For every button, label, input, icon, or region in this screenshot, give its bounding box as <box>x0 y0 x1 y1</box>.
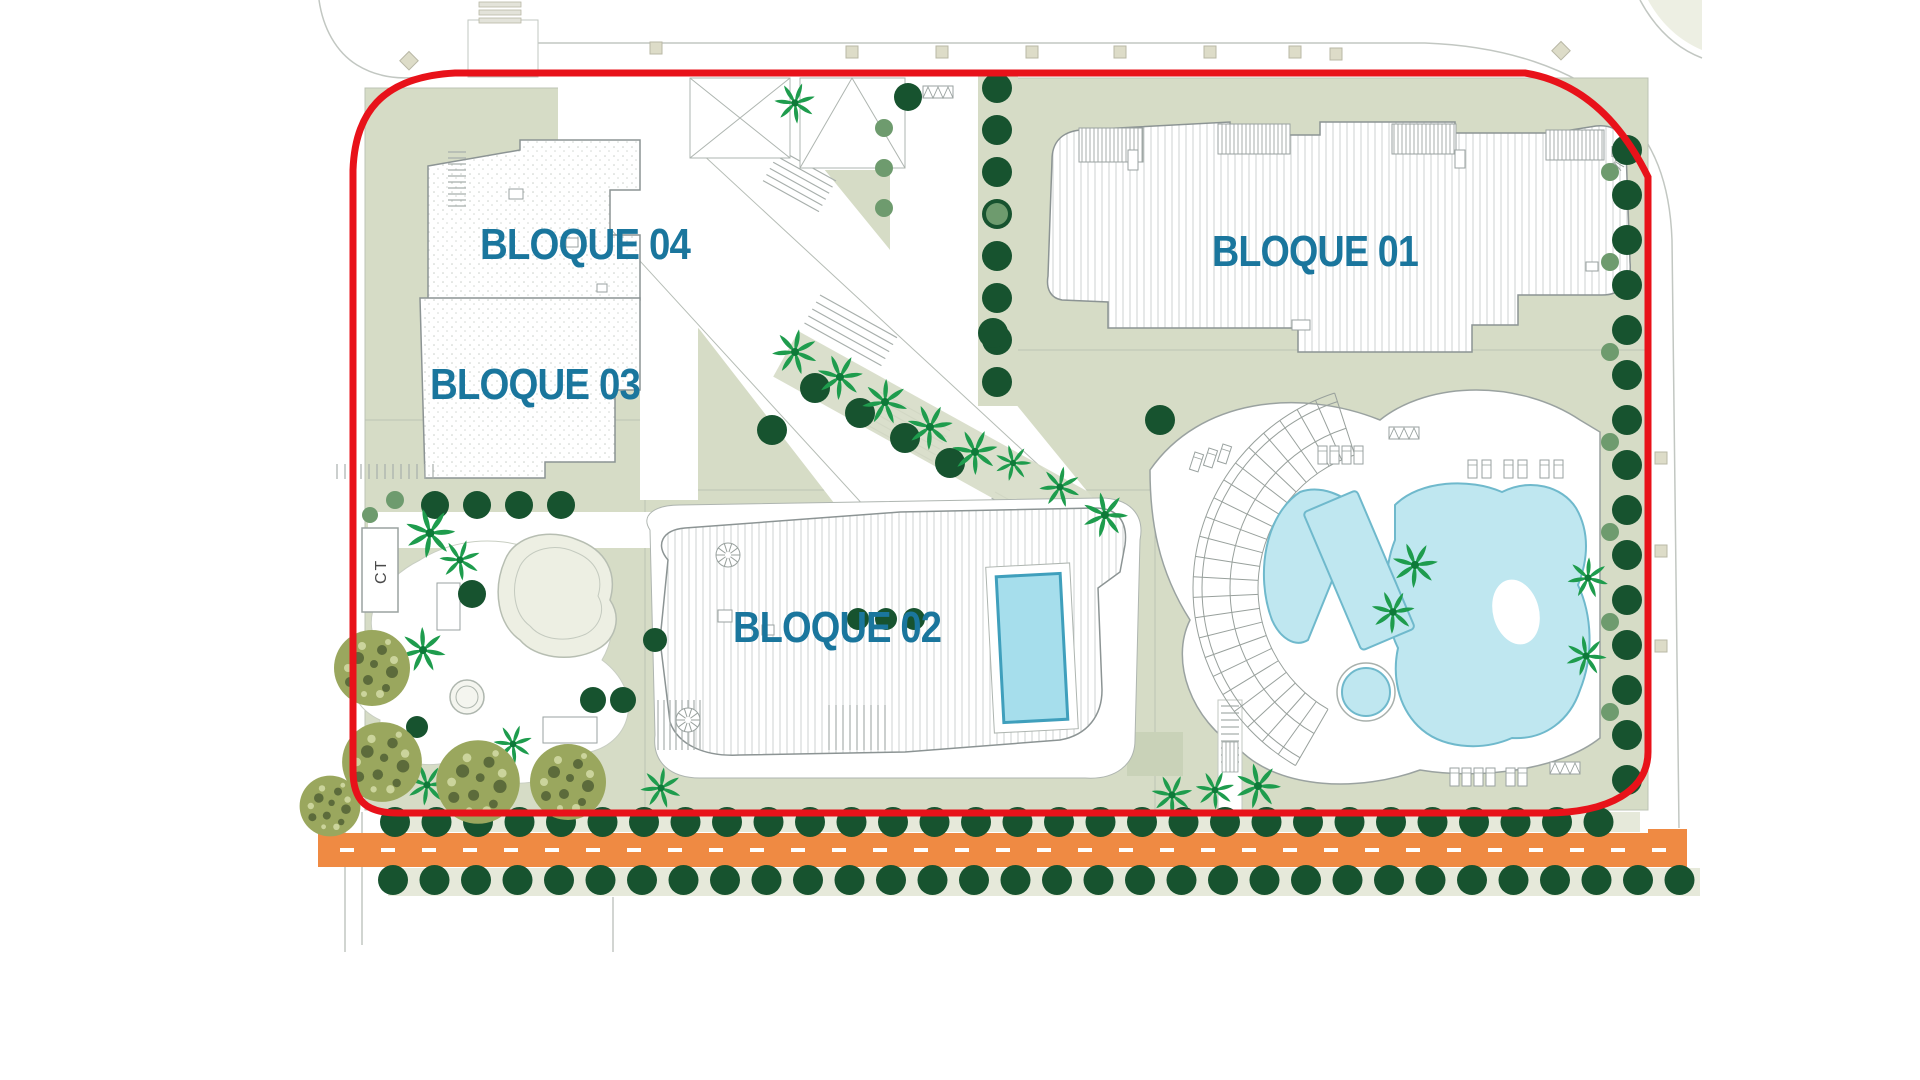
tree <box>580 687 606 713</box>
tree <box>757 415 787 445</box>
tree <box>982 367 1012 397</box>
tree <box>1612 585 1642 615</box>
label-bloque01: BLOQUE 01 <box>1212 227 1418 276</box>
pedestrian-crossing-island <box>468 20 538 77</box>
tree <box>1612 540 1642 570</box>
tree <box>1601 253 1619 271</box>
tree <box>875 199 893 217</box>
masterplan-svg: BLOQUE 04 BLOQUE 03 BLOQUE 02 BLOQUE 01 … <box>0 0 1920 1080</box>
tree <box>1145 405 1175 435</box>
tree <box>1612 720 1642 750</box>
tree <box>835 865 865 895</box>
tree <box>1612 360 1642 390</box>
tree <box>547 491 575 519</box>
tree <box>1612 405 1642 435</box>
roundabout-outer <box>450 680 484 714</box>
tree <box>793 865 823 895</box>
tree <box>918 865 948 895</box>
tree <box>982 241 1012 271</box>
site-plan-canvas: BLOQUE 04 BLOQUE 03 BLOQUE 02 BLOQUE 01 … <box>0 0 1920 1080</box>
tree <box>1374 865 1404 895</box>
tree <box>1601 613 1619 631</box>
label-bloque02: BLOQUE 02 <box>733 603 941 652</box>
tree <box>378 865 408 895</box>
tree <box>1457 865 1487 895</box>
tree <box>463 491 491 519</box>
tree <box>1001 865 1031 895</box>
tree <box>1612 630 1642 660</box>
road-edge-top-left <box>319 0 452 78</box>
tree <box>982 283 1012 313</box>
label-bloque04: BLOQUE 04 <box>480 220 691 269</box>
tree <box>1333 865 1363 895</box>
tree <box>1416 865 1446 895</box>
tree <box>643 628 667 652</box>
west-walk <box>640 96 698 500</box>
tree <box>503 865 533 895</box>
tree <box>1582 865 1612 895</box>
tree <box>875 159 893 177</box>
tree <box>710 865 740 895</box>
tree <box>1612 495 1642 525</box>
label-bloque03: BLOQUE 03 <box>430 360 640 409</box>
tree <box>1125 865 1155 895</box>
label-ct: CT <box>373 559 390 584</box>
tree <box>1540 865 1570 895</box>
tree <box>1612 315 1642 345</box>
bloque02-pool-group <box>986 563 1079 733</box>
tree <box>1612 675 1642 705</box>
tree <box>1601 703 1619 721</box>
tree <box>1601 343 1619 361</box>
tree <box>458 580 486 608</box>
tree <box>420 865 450 895</box>
tree <box>461 865 491 895</box>
tree <box>505 491 533 519</box>
tree <box>875 119 893 137</box>
tree <box>1250 865 1280 895</box>
zebra-crossing <box>479 2 521 23</box>
tree <box>1623 865 1653 895</box>
pergola-trellis <box>1222 742 1238 772</box>
tree <box>1665 865 1695 895</box>
tree <box>544 865 574 895</box>
tree <box>1612 450 1642 480</box>
tree <box>894 83 922 111</box>
tree <box>982 73 1012 103</box>
tree <box>982 115 1012 145</box>
tree <box>959 865 989 895</box>
tree <box>1601 163 1619 181</box>
tree <box>876 865 906 895</box>
spa-pool <box>1342 668 1390 716</box>
lagoon-pool-large <box>1386 483 1589 746</box>
tree <box>1612 270 1642 300</box>
tree <box>610 687 636 713</box>
tree <box>1291 865 1321 895</box>
tree <box>669 865 699 895</box>
tree <box>362 507 378 523</box>
tree <box>1208 865 1238 895</box>
tree <box>1167 865 1197 895</box>
tree <box>1601 433 1619 451</box>
tree <box>1612 225 1642 255</box>
tree <box>386 491 404 509</box>
tree <box>1601 523 1619 541</box>
tree <box>986 203 1008 225</box>
tree <box>752 865 782 895</box>
tree <box>586 865 616 895</box>
tree <box>1612 180 1642 210</box>
bloque02-pool <box>996 573 1068 722</box>
tree <box>978 318 1008 348</box>
tree <box>627 865 657 895</box>
tree <box>1499 865 1529 895</box>
tree <box>1042 865 1072 895</box>
tree <box>1084 865 1114 895</box>
tree <box>982 157 1012 187</box>
